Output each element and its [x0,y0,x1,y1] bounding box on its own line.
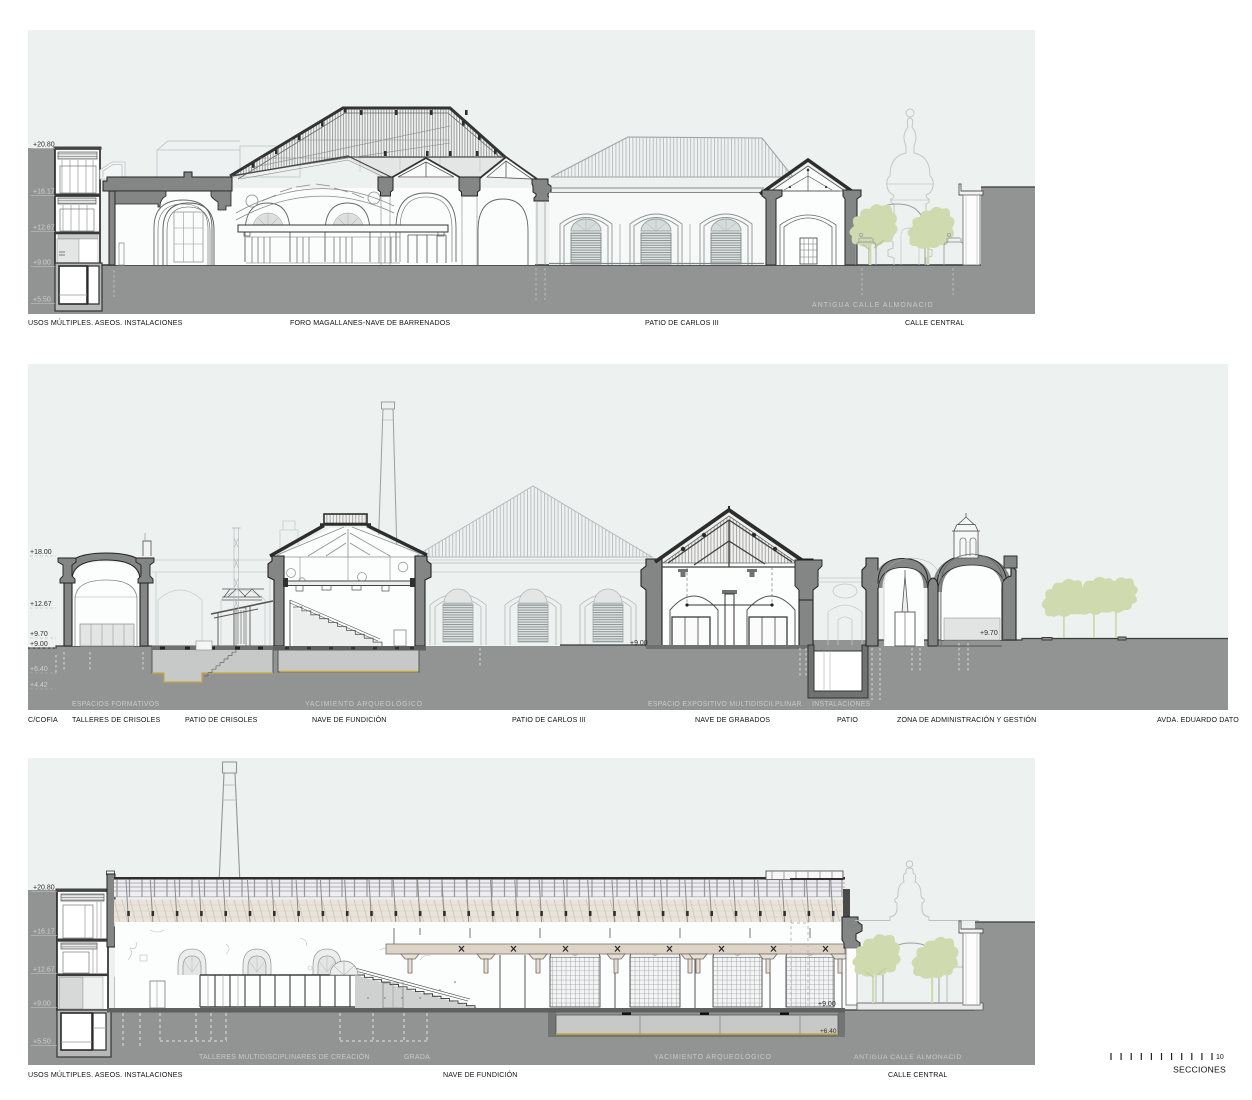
svg-text:USOS MÚLTIPLES. ASEOS. INSTALA: USOS MÚLTIPLES. ASEOS. INSTALACIONES [28,318,183,327]
svg-text:PATIO: PATIO [837,716,858,724]
svg-text:+6.40: +6.40 [820,1028,837,1035]
svg-text:CALLE CENTRAL: CALLE CENTRAL [888,1071,948,1079]
svg-text:CALLE CENTRAL: CALLE CENTRAL [905,319,965,327]
svg-text:TALLERES DE CRISOLES: TALLERES DE CRISOLES [72,716,161,724]
svg-text:ESPACIOS FORMATIVOS: ESPACIOS FORMATIVOS [72,701,159,708]
svg-text:AVDA. EDUARDO DATO: AVDA. EDUARDO DATO [1157,716,1239,724]
svg-text:NAVE DE FUNDICIÓN: NAVE DE FUNDICIÓN [443,1070,518,1079]
svg-text:PATIO DE CARLOS III: PATIO DE CARLOS III [645,319,719,327]
svg-text:YACIMIENTO ARQUEOLÓGICO: YACIMIENTO ARQUEOLÓGICO [654,1052,772,1061]
svg-text:NAVE DE FUNDICIÓN: NAVE DE FUNDICIÓN [312,715,387,724]
svg-text:+12.67: +12.67 [30,601,52,608]
svg-text:+9.00: +9.00 [818,1001,836,1008]
svg-text:FORO MAGALLANES-NAVE DE BARREN: FORO MAGALLANES-NAVE DE BARRENADOS [290,319,450,327]
svg-text:+9.70: +9.70 [980,630,998,637]
svg-text:+20.80: +20.80 [33,885,55,892]
svg-text:ANTIGUA CALLE ALMONACID: ANTIGUA CALLE ALMONACID [812,302,934,309]
svg-text:+9.00: +9.00 [30,641,48,648]
svg-text:+20.80: +20.80 [33,142,55,149]
svg-text:+12.67: +12.67 [33,967,55,974]
svg-text:+9.00: +9.00 [33,1001,51,1008]
svg-text:+6.40: +6.40 [30,666,48,673]
svg-text:PATIO DE CARLOS III: PATIO DE CARLOS III [512,716,586,724]
svg-text:USOS MÚLTIPLES. ASEOS. INSTALA: USOS MÚLTIPLES. ASEOS. INSTALACIONES [28,1070,183,1079]
svg-text:+12.67: +12.67 [33,225,55,232]
svg-text:+9.70: +9.70 [30,631,48,638]
svg-text:SECCIONES: SECCIONES [1173,1065,1226,1075]
svg-text:PATIO DE CRISOLES: PATIO DE CRISOLES [185,716,258,724]
svg-text:NAVE DE GRABADOS: NAVE DE GRABADOS [695,716,770,724]
svg-text:+4.42: +4.42 [30,682,48,689]
svg-text:+18.00: +18.00 [30,549,52,556]
svg-text:10: 10 [1216,1054,1224,1061]
svg-text:+5.50: +5.50 [33,1039,51,1046]
svg-text:C/COFIA: C/COFIA [28,716,58,724]
svg-text:GRADA: GRADA [404,1054,430,1061]
svg-text:+9.00: +9.00 [630,640,648,647]
svg-text:+16.17: +16.17 [33,929,55,936]
svg-text:INSTALACIONES: INSTALACIONES [812,701,871,708]
svg-text:ANTIGUA CALLE ALMONACID: ANTIGUA CALLE ALMONACID [854,1054,962,1061]
svg-text:+9.00: +9.00 [33,260,51,267]
svg-text:YACIMIENTO ARQUEOLÓGICO: YACIMIENTO ARQUEOLÓGICO [305,699,423,708]
svg-text:TALLERES MULTIDISCIPLINARES DE: TALLERES MULTIDISCIPLINARES DE CREACIÓN [199,1052,370,1061]
svg-text:+5.50: +5.50 [33,297,51,304]
svg-text:ZONA DE ADMINISTRACIÓN Y GESTI: ZONA DE ADMINISTRACIÓN Y GESTIÓN [897,715,1036,724]
svg-text:ESPACIO EXPOSITIVO MULTIDISCIL: ESPACIO EXPOSITIVO MULTIDISCILPLINAR [648,701,802,708]
svg-text:+16.17: +16.17 [33,189,55,196]
